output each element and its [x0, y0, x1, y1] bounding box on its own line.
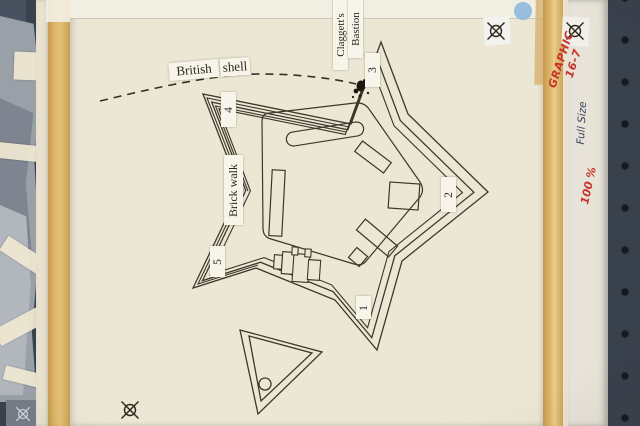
bastion-number-3: 3: [365, 53, 380, 87]
registration-mark: [488, 23, 505, 40]
building: [388, 182, 420, 210]
registration-mark: [122, 402, 139, 419]
label-text: 5: [212, 259, 224, 265]
ravelin-detail: [259, 378, 271, 390]
bastion-number-4: 4: [221, 92, 236, 127]
bastion-number-2: 2: [441, 177, 456, 212]
blue-dot-sticker: [514, 2, 532, 20]
label-strip-claggetts: Claggett's: [333, 0, 348, 70]
label-text: shell: [222, 58, 248, 76]
label-text: 3: [367, 67, 379, 73]
building: [356, 219, 397, 257]
label-text: 4: [223, 107, 235, 113]
registration-mark: [16, 407, 30, 421]
ravelin-inner: [249, 336, 312, 401]
fort-rampart-outer: [203, 54, 474, 337]
label-strip-bastion: Bastion: [348, 0, 363, 58]
label-strip-brick-walk: Brick walk: [224, 155, 243, 225]
label-text: Bastion: [350, 12, 362, 46]
bastion-number-1: 1: [356, 296, 371, 319]
label-text: Brick walk: [226, 164, 241, 217]
fort-rampart-inner: [210, 64, 462, 327]
label-strip-shell: shell: [219, 57, 250, 77]
fort-plan-drawing: [0, 0, 640, 426]
building: [355, 141, 392, 173]
label-text: 2: [443, 192, 455, 198]
label-text: Claggett's: [335, 13, 347, 57]
photo-of-pasteup-board: British shell Claggett's Bastion Brick w…: [0, 0, 640, 426]
sallyport-building: [305, 249, 312, 257]
handwritten-full-size: Full Size: [575, 95, 592, 152]
parade-ground: [262, 103, 423, 265]
bastion-number-5: 5: [210, 246, 225, 277]
sallyport-building: [274, 255, 283, 270]
handwriting-line: Full Size: [575, 101, 589, 145]
sallyport-building: [292, 247, 299, 255]
building: [269, 170, 285, 237]
tape-patch: [483, 16, 511, 46]
ravelin-outer: [240, 330, 322, 414]
label-text: British: [176, 60, 213, 79]
label-text: 1: [358, 305, 370, 311]
sallyport-building: [307, 260, 320, 281]
